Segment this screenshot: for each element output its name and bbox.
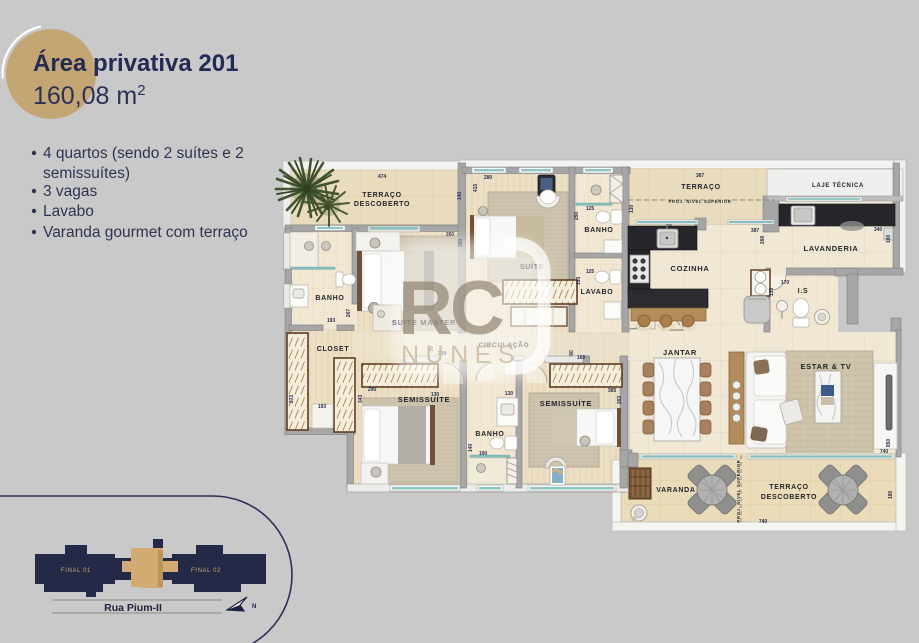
svg-text:850: 850: [886, 439, 892, 448]
svg-text:CLOSET: CLOSET: [317, 346, 350, 353]
svg-text:100: 100: [479, 451, 488, 457]
svg-text:N: N: [252, 604, 256, 610]
svg-text:268: 268: [760, 236, 766, 245]
svg-text:Rua Pium-II: Rua Pium-II: [104, 602, 162, 614]
svg-text:semissuítes): semissuítes): [43, 165, 130, 182]
svg-text:DESCOBERTO: DESCOBERTO: [761, 494, 817, 501]
svg-text:340: 340: [874, 227, 883, 233]
svg-text:LAJE TÉCNICA: LAJE TÉCNICA: [812, 181, 864, 189]
svg-text:135: 135: [769, 288, 775, 297]
svg-text:160,08 m2: 160,08 m2: [33, 82, 146, 110]
svg-text:Área privativa 201: Área privativa 201: [33, 49, 238, 77]
svg-text:290: 290: [368, 387, 377, 393]
svg-text:740: 740: [880, 449, 889, 455]
svg-text:740: 740: [759, 519, 768, 525]
svg-text:130: 130: [431, 392, 440, 398]
svg-text:474: 474: [378, 174, 387, 180]
svg-text:387: 387: [696, 173, 705, 179]
svg-text:263: 263: [617, 396, 623, 405]
svg-text:Varanda gourmet com terraço: Varanda gourmet com terraço: [43, 224, 248, 241]
svg-text:280: 280: [484, 175, 493, 181]
svg-text:273: 273: [289, 395, 295, 404]
svg-text:3 vagas: 3 vagas: [43, 183, 98, 200]
svg-text:180: 180: [888, 491, 894, 500]
svg-text:TERRAÇO: TERRAÇO: [362, 192, 402, 199]
svg-text:VARANDA: VARANDA: [656, 487, 695, 494]
svg-text:250: 250: [574, 212, 580, 221]
svg-text:Lavabo: Lavabo: [43, 203, 94, 220]
svg-text:193: 193: [576, 277, 582, 286]
svg-text:130: 130: [505, 391, 514, 397]
svg-text:BANHO: BANHO: [584, 227, 613, 234]
svg-text:193: 193: [318, 404, 327, 410]
svg-text:TERRAÇO: TERRAÇO: [769, 484, 809, 491]
svg-text:4 quartos (sendo 2 suítes e 2: 4 quartos (sendo 2 suítes e 2: [43, 145, 244, 162]
svg-text:140: 140: [468, 444, 474, 453]
svg-text:SEMISSUÍTE: SEMISSUÍTE: [540, 399, 592, 408]
svg-text:ESTAR & TV: ESTAR & TV: [800, 362, 851, 371]
svg-text:415: 415: [473, 184, 479, 193]
svg-text:169: 169: [577, 355, 586, 361]
svg-text:JANTAR: JANTAR: [663, 348, 697, 357]
svg-text:I.S: I.S: [798, 288, 809, 295]
svg-text:NUNES: NUNES: [401, 341, 521, 369]
svg-text:193: 193: [327, 318, 336, 324]
svg-text:140: 140: [457, 192, 463, 201]
svg-text:260: 260: [446, 232, 455, 238]
svg-text:LAVABO: LAVABO: [581, 289, 614, 296]
svg-text:387: 387: [751, 228, 760, 234]
svg-text:BANHO: BANHO: [475, 431, 504, 438]
svg-text:COZINHA: COZINHA: [670, 264, 709, 273]
svg-text:PROJ. NÍVEL SUPERIOR: PROJ. NÍVEL SUPERIOR: [736, 459, 741, 522]
svg-text:267: 267: [346, 309, 352, 318]
svg-text:LAVANDERIA: LAVANDERIA: [803, 244, 858, 253]
svg-text:125: 125: [586, 269, 595, 275]
svg-text:RC: RC: [398, 266, 503, 351]
svg-text:343: 343: [358, 395, 364, 404]
svg-text:FINAL 02: FINAL 02: [191, 568, 221, 574]
svg-text:FINAL 01: FINAL 01: [61, 568, 91, 574]
svg-text:125: 125: [586, 206, 595, 212]
svg-text:PROJ. NÍVEL SUPERIOR: PROJ. NÍVEL SUPERIOR: [668, 199, 731, 204]
svg-text:SEMISSUÍTE: SEMISSUÍTE: [398, 395, 450, 404]
svg-text:TERRAÇO: TERRAÇO: [681, 184, 721, 191]
svg-text:385: 385: [608, 388, 617, 394]
svg-text:BANHO: BANHO: [315, 295, 344, 302]
svg-text:180: 180: [886, 235, 892, 244]
svg-text:170: 170: [781, 280, 790, 286]
svg-text:130: 130: [629, 205, 635, 214]
svg-text:DESCOBERTO: DESCOBERTO: [354, 201, 410, 208]
svg-text:60: 60: [569, 350, 575, 356]
